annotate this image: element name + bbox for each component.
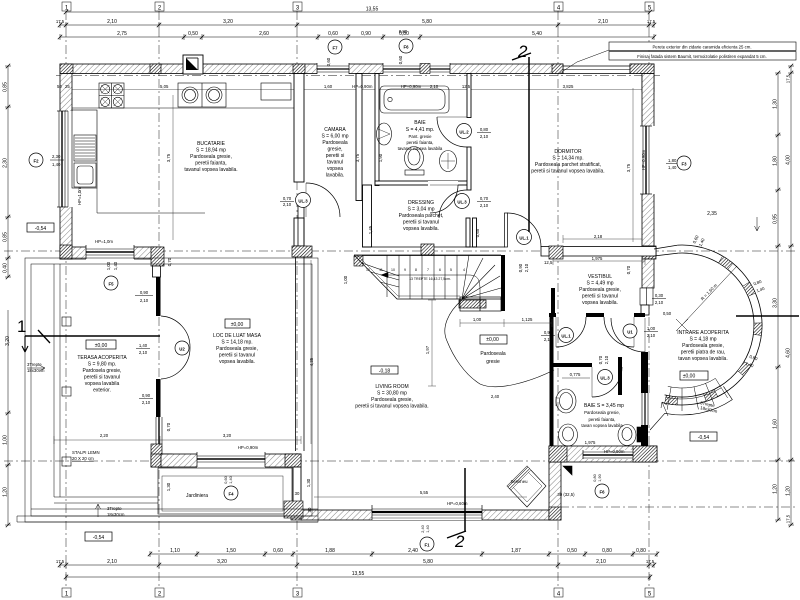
svg-text:BAIE: BAIE: [414, 120, 426, 126]
svg-text:1,40: 1,40: [426, 525, 430, 532]
svg-text:S = 3,04 mp: S = 3,04 mp: [407, 207, 434, 213]
svg-text:UL.1: UL.1: [561, 334, 571, 339]
svg-text:6: 6: [439, 268, 441, 272]
svg-text:gresie: gresie: [486, 359, 500, 365]
svg-text:2,40: 2,40: [491, 394, 500, 399]
svg-text:Pardoseala gresie,: Pardoseala gresie,: [190, 154, 232, 160]
svg-text:HP+0,90m: HP+0,90m: [401, 84, 422, 89]
svg-text:LIVING ROOM: LIVING ROOM: [375, 384, 408, 390]
svg-text:17,5: 17,5: [56, 559, 65, 564]
svg-text:U1: U1: [627, 330, 633, 335]
svg-text:2,40: 2,40: [408, 548, 418, 554]
svg-text:0,65: 0,65: [475, 228, 480, 237]
svg-text:2,10: 2,10: [283, 202, 292, 207]
svg-text:S = 14,34 mp.: S = 14,34 mp.: [552, 156, 583, 162]
svg-text:tavan vopsea lavabila.: tavan vopsea lavabila.: [678, 356, 727, 362]
svg-text:1,90: 1,90: [378, 153, 383, 162]
svg-text:2,10: 2,10: [524, 263, 529, 272]
svg-text:S = 4,18 mp: S = 4,18 mp: [689, 337, 716, 343]
svg-text:2,75: 2,75: [117, 31, 127, 37]
svg-text:-0,54: -0,54: [698, 435, 710, 441]
svg-text:±0,00: ±0,00: [486, 337, 499, 343]
svg-text:DRESSING: DRESSING: [408, 200, 434, 206]
svg-text:0,70: 0,70: [598, 355, 603, 364]
svg-text:S = 4,49 mp: S = 4,49 mp: [586, 281, 613, 287]
svg-text:2,10: 2,10: [604, 355, 609, 364]
svg-text:1,40: 1,40: [113, 261, 118, 270]
svg-text:1,975: 1,975: [592, 256, 603, 261]
svg-text:tavanul vopsea lavabila: tavanul vopsea lavabila: [398, 146, 443, 151]
svg-text:vopsea lavabila.: vopsea lavabila.: [582, 300, 618, 306]
svg-text:±0,00: ±0,00: [95, 343, 108, 349]
svg-text:13,55: 13,55: [366, 7, 379, 13]
svg-text:0,70: 0,70: [167, 257, 172, 266]
svg-text:25: 25: [65, 84, 70, 89]
svg-text:Pardoseala gresie,: Pardoseala gresie,: [216, 346, 258, 352]
svg-text:vopsea lavabila.: vopsea lavabila.: [219, 359, 255, 365]
svg-text:1,30: 1,30: [306, 478, 311, 487]
svg-text:11: 11: [379, 268, 383, 272]
svg-text:tavanul vopsea lavabila.: tavanul vopsea lavabila.: [184, 167, 237, 173]
svg-text:0,60: 0,60: [273, 548, 283, 554]
svg-text:3,75: 3,75: [355, 153, 360, 162]
svg-text:STALPI LEMN: STALPI LEMN: [72, 450, 100, 455]
svg-text:2,30: 2,30: [3, 158, 9, 168]
svg-text:12,5: 12,5: [544, 260, 553, 265]
svg-text:2,10: 2,10: [655, 300, 664, 305]
svg-text:2,18: 2,18: [594, 234, 603, 239]
svg-text:F1: F1: [424, 543, 430, 548]
svg-text:1,80: 1,80: [668, 158, 677, 163]
svg-text:gresie,: gresie,: [327, 147, 342, 153]
svg-text:1,87: 1,87: [511, 548, 521, 554]
svg-text:UL.3: UL.3: [600, 376, 610, 381]
svg-text:Pardoseala parchet,: Pardoseala parchet,: [399, 213, 444, 219]
svg-text:3,30: 3,30: [773, 298, 779, 308]
svg-text:0,70: 0,70: [283, 196, 292, 201]
svg-text:1,40: 1,40: [229, 476, 233, 483]
svg-text:peretii si tavanul: peretii si tavanul: [84, 375, 120, 381]
svg-text:1,40: 1,40: [668, 165, 677, 170]
svg-text:2,35: 2,35: [707, 211, 717, 217]
svg-text:20 X 20 cm: 20 X 20 cm: [72, 456, 94, 461]
svg-text:peretii si tavanul: peretii si tavanul: [582, 294, 618, 300]
svg-text:1,10: 1,10: [170, 548, 180, 554]
svg-text:5,05: 5,05: [160, 84, 169, 89]
svg-text:0,60: 0,60: [224, 476, 228, 483]
svg-text:Perete exterior din zidarie ca: Perete exterior din zidarie caramida efi…: [652, 45, 751, 50]
svg-text:F2: F2: [33, 159, 39, 164]
svg-text:UL.2: UL.2: [459, 130, 469, 135]
svg-text:0,80: 0,80: [593, 474, 597, 481]
svg-text:INTRARE ACOPERITA: INTRARE ACOPERITA: [677, 330, 729, 336]
svg-text:0,90: 0,90: [142, 393, 151, 398]
svg-text:2,10: 2,10: [544, 337, 553, 342]
svg-text:Pant. gresie: Pant. gresie: [409, 134, 433, 139]
svg-text:F6: F6: [403, 45, 409, 50]
svg-text:0,775: 0,775: [570, 372, 581, 377]
svg-text:50: 50: [57, 84, 62, 89]
svg-text:F7: F7: [332, 46, 338, 51]
svg-text:8: 8: [415, 268, 417, 272]
svg-text:BUCATARIE: BUCATARIE: [197, 141, 226, 147]
svg-text:3,75: 3,75: [166, 153, 171, 162]
svg-text:Pardoseala gresie,: Pardoseala gresie,: [371, 397, 413, 403]
svg-text:1,30: 1,30: [773, 99, 779, 109]
svg-text:BAIE S = 3,45 mp: BAIE S = 3,45 mp: [584, 403, 624, 409]
svg-text:12: 12: [366, 268, 370, 272]
svg-text:4,35: 4,35: [309, 357, 314, 366]
svg-text:1,30: 1,30: [166, 482, 171, 491]
svg-text:2,10: 2,10: [598, 19, 608, 25]
svg-text:peretii si tavanul: peretii si tavanul: [219, 353, 255, 359]
svg-text:2,10: 2,10: [140, 298, 149, 303]
svg-text:Pardoseala: Pardoseala: [480, 351, 506, 357]
svg-text:vopsea: vopsea: [327, 166, 343, 172]
svg-text:U2: U2: [179, 347, 185, 352]
svg-text:17,5: 17,5: [647, 19, 656, 24]
svg-text:HP=1,0m: HP=1,0m: [95, 239, 113, 244]
svg-text:4,00: 4,00: [786, 155, 792, 165]
svg-text:5: 5: [450, 268, 452, 272]
svg-text:0,90: 0,90: [518, 263, 523, 272]
svg-text:2,10: 2,10: [480, 134, 489, 139]
svg-text:0,50: 0,50: [663, 311, 672, 316]
svg-text:4: 4: [463, 268, 465, 272]
svg-text:-0,18: -0,18: [379, 369, 391, 375]
svg-text:12,5: 12,5: [462, 84, 471, 89]
svg-text:UL.3: UL.3: [298, 199, 308, 204]
svg-text:1,20: 1,20: [786, 486, 792, 496]
svg-text:peretii si tavanul: peretii si tavanul: [403, 220, 439, 226]
svg-text:0,30: 0,30: [655, 293, 664, 298]
svg-text:1,60: 1,60: [324, 84, 333, 89]
svg-text:HP=0,90m: HP=0,90m: [604, 449, 625, 454]
svg-text:2,10: 2,10: [107, 19, 117, 25]
svg-text:LOC DE LUAT MASA: LOC DE LUAT MASA: [213, 333, 262, 339]
svg-text:TERASA ACOPERITA: TERASA ACOPERITA: [77, 355, 127, 361]
svg-text:18x30cm: 18x30cm: [107, 512, 125, 517]
svg-text:2,30: 2,30: [52, 154, 61, 159]
svg-text:±0,00: ±0,00: [231, 322, 244, 328]
svg-text:3,825: 3,825: [563, 84, 574, 89]
svg-text:1,60: 1,60: [773, 419, 779, 429]
svg-text:3Trepte: 3Trepte: [27, 362, 42, 367]
svg-text:0,80: 0,80: [399, 29, 408, 34]
svg-text:1,50: 1,50: [226, 548, 236, 554]
svg-text:30: 30: [295, 491, 300, 496]
svg-text:3,20: 3,20: [223, 19, 233, 25]
svg-text:30: 30: [307, 507, 312, 512]
svg-text:S = 14,18 mp.: S = 14,18 mp.: [221, 340, 252, 346]
svg-text:1,40: 1,40: [52, 162, 61, 167]
svg-text:vopsea lavabila: vopsea lavabila: [85, 381, 120, 387]
svg-text:5,80: 5,80: [422, 19, 432, 25]
svg-text:Finisaj fatada sistem Baumit,: Finisaj fatada sistem Baumit, termoizola…: [637, 54, 766, 59]
svg-text:1,80: 1,80: [773, 156, 779, 166]
svg-text:0,80: 0,80: [602, 548, 612, 554]
svg-text:peretii si tavanul vopsea lava: peretii si tavanul vopsea lavabila.: [355, 404, 428, 410]
svg-text:18x30cm: 18x30cm: [27, 368, 45, 373]
svg-text:-0,54: -0,54: [35, 226, 47, 232]
svg-text:Pardoseala gresie,: Pardoseala gresie,: [579, 287, 621, 293]
svg-text:Pardoseala gresie,: Pardoseala gresie,: [584, 410, 620, 415]
svg-text:17,5: 17,5: [56, 19, 65, 24]
svg-text:13 TREPTE 16,43 27,5cm.: 13 TREPTE 16,43 27,5cm.: [409, 277, 451, 281]
svg-text:Pardosela gresie,: Pardosela gresie,: [83, 368, 122, 374]
svg-text:2,10: 2,10: [480, 203, 489, 208]
svg-text:0,60: 0,60: [326, 57, 331, 66]
svg-text:peretii faianta,: peretii faianta,: [589, 417, 616, 422]
svg-text:1,125: 1,125: [522, 317, 533, 322]
svg-text:1,90: 1,90: [598, 474, 602, 481]
svg-text:5,80: 5,80: [423, 559, 433, 565]
svg-text:1,00: 1,00: [473, 317, 482, 322]
svg-text:1,00: 1,00: [106, 261, 111, 270]
svg-text:1,20: 1,20: [3, 487, 9, 497]
svg-text:1,40: 1,40: [139, 343, 148, 348]
svg-text:peretii faianta,: peretii faianta,: [195, 161, 226, 167]
svg-text:UL.3: UL.3: [457, 200, 467, 205]
svg-text:Pardoseala: Pardoseala: [322, 140, 348, 146]
svg-text:CAMARA: CAMARA: [324, 127, 346, 133]
svg-text:1,20: 1,20: [773, 484, 779, 494]
svg-text:exterior.: exterior.: [93, 388, 111, 394]
svg-text:UL.1: UL.1: [519, 236, 529, 241]
svg-text:2,40: 2,40: [421, 525, 425, 532]
svg-text:0,70: 0,70: [480, 196, 489, 201]
svg-text:9: 9: [404, 268, 406, 272]
svg-text:peretii si: peretii si: [326, 153, 345, 159]
svg-text:S = 30,80 mp: S = 30,80 mp: [377, 391, 407, 397]
svg-text:DORMITOR: DORMITOR: [554, 149, 582, 155]
svg-text:lavabila.: lavabila.: [326, 173, 344, 179]
svg-text:peretii si tavanul vopsea lava: peretii si tavanul vopsea lavabila.: [531, 169, 604, 175]
svg-text:S = 6,00 mp: S = 6,00 mp: [321, 134, 348, 140]
svg-text:HP=0,90m: HP=0,90m: [238, 445, 259, 450]
svg-text:3,20: 3,20: [5, 336, 11, 346]
svg-text:4,60: 4,60: [786, 348, 792, 358]
svg-text:1,97: 1,97: [425, 345, 430, 354]
svg-text:3Trepte: 3Trepte: [107, 506, 122, 511]
svg-text:0,50: 0,50: [188, 31, 198, 37]
svg-text:3,20: 3,20: [223, 433, 232, 438]
svg-text:0,80: 0,80: [636, 548, 646, 554]
svg-text:10: 10: [391, 268, 395, 272]
svg-text:3,20: 3,20: [217, 559, 227, 565]
svg-text:17,5: 17,5: [786, 514, 791, 523]
svg-text:1,88: 1,88: [325, 548, 335, 554]
svg-text:1,00: 1,00: [3, 435, 9, 445]
svg-text:F3: F3: [681, 162, 687, 167]
svg-text:Pardoseala gresie,: Pardoseala gresie,: [682, 343, 724, 349]
svg-text:HP=1,0m: HP=1,0m: [77, 187, 82, 205]
svg-text:vopsea lavabila.: vopsea lavabila.: [403, 226, 439, 232]
svg-text:1,00: 1,00: [343, 275, 348, 284]
svg-text:13,55: 13,55: [352, 571, 365, 577]
svg-text:2,60: 2,60: [259, 31, 269, 37]
svg-text:17,5: 17,5: [786, 74, 791, 83]
svg-text:0,60: 0,60: [398, 55, 403, 64]
svg-text:0,85: 0,85: [3, 232, 9, 242]
svg-text:0,50: 0,50: [567, 548, 577, 554]
svg-text:tavanul: tavanul: [327, 160, 343, 166]
svg-text:5,40: 5,40: [532, 31, 542, 37]
svg-text:F5: F5: [108, 282, 114, 287]
svg-text:tavan vopsea lavabila: tavan vopsea lavabila: [581, 423, 623, 428]
svg-text:2,10: 2,10: [142, 400, 151, 405]
svg-text:2,10: 2,10: [139, 350, 148, 355]
svg-text:30 (32,5): 30 (32,5): [557, 492, 575, 497]
svg-text:2,10: 2,10: [430, 84, 439, 89]
svg-text:2,20: 2,20: [100, 433, 109, 438]
svg-text:S = 4,41 mp.: S = 4,41 mp.: [406, 127, 435, 133]
svg-text:2,10: 2,10: [107, 559, 117, 565]
svg-text:F4: F4: [228, 492, 234, 497]
svg-text:HP=0,90m: HP=0,90m: [352, 84, 373, 89]
svg-text:5,55: 5,55: [420, 490, 429, 495]
svg-text:peretii faianta,: peretii faianta,: [407, 140, 434, 145]
svg-text:0,90: 0,90: [361, 31, 371, 37]
svg-text:S = 18,94 mp: S = 18,94 mp: [196, 148, 226, 154]
svg-text:0,40: 0,40: [3, 263, 9, 273]
svg-text:1,45: 1,45: [368, 225, 373, 234]
svg-text:0,60: 0,60: [328, 31, 338, 37]
svg-text:VESTIBUL: VESTIBUL: [588, 274, 612, 280]
svg-text:Pardoseala parchet stratificat: Pardoseala parchet stratificat,: [535, 162, 601, 168]
svg-text:peretii piatra de rau,: peretii piatra de rau,: [681, 350, 725, 356]
svg-text:±0,00: ±0,00: [683, 374, 696, 380]
svg-text:2,10: 2,10: [596, 559, 606, 565]
svg-text:HP+0,90m: HP+0,90m: [641, 149, 646, 170]
svg-text:1,975: 1,975: [585, 440, 596, 445]
svg-text:S = 9,80 mp.: S = 9,80 mp.: [88, 362, 117, 368]
svg-text:1: 1: [17, 317, 26, 336]
svg-text:7: 7: [427, 268, 429, 272]
svg-text:1,00: 1,00: [647, 326, 656, 331]
svg-text:Jardiniera: Jardiniera: [186, 493, 208, 499]
svg-text:0,90: 0,90: [140, 290, 149, 295]
svg-text:0,80: 0,80: [480, 127, 489, 132]
svg-text:0,70: 0,70: [166, 422, 171, 431]
svg-text:2,10: 2,10: [647, 333, 656, 338]
svg-text:0,90: 0,90: [544, 330, 553, 335]
svg-text:0,95: 0,95: [773, 214, 779, 224]
svg-text:F6: F6: [599, 490, 605, 495]
svg-text:0,70: 0,70: [626, 265, 631, 274]
svg-text:0,85: 0,85: [3, 82, 9, 92]
svg-text:-0,54: -0,54: [93, 535, 105, 541]
svg-text:3,75: 3,75: [626, 163, 631, 172]
svg-text:Semineu: Semineu: [511, 479, 529, 484]
